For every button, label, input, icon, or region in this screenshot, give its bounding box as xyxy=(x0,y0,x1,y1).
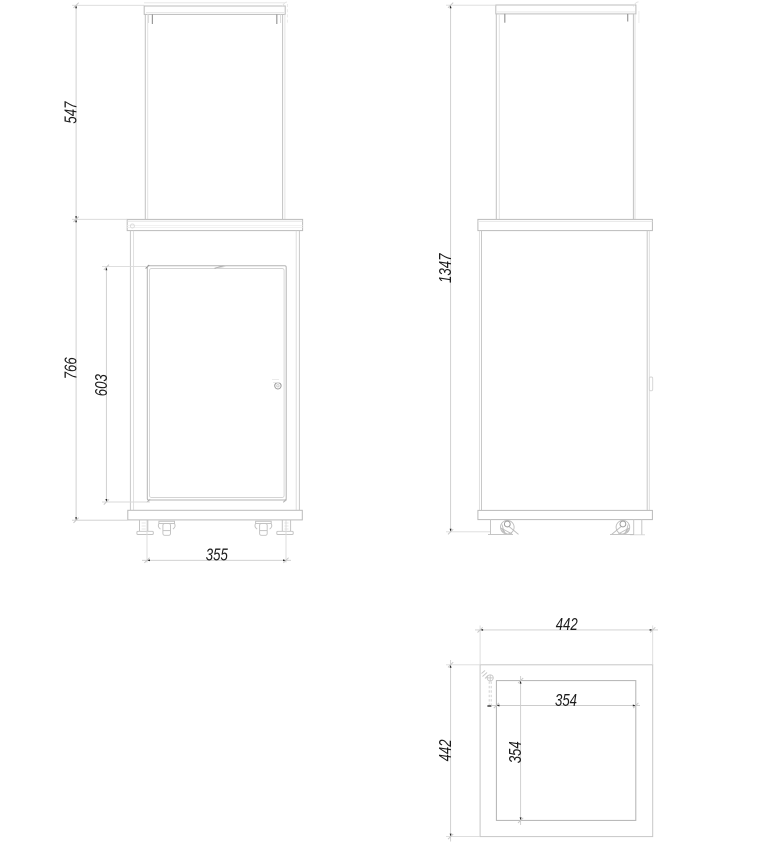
svg-text:1347: 1347 xyxy=(435,252,455,282)
svg-text:547: 547 xyxy=(60,101,80,124)
svg-text:354: 354 xyxy=(505,741,525,763)
svg-text:442: 442 xyxy=(556,614,578,634)
svg-text:355: 355 xyxy=(206,545,228,565)
svg-text:603: 603 xyxy=(91,374,111,396)
svg-text:442: 442 xyxy=(435,739,455,761)
svg-text:354: 354 xyxy=(555,690,577,710)
svg-text:766: 766 xyxy=(60,357,80,379)
